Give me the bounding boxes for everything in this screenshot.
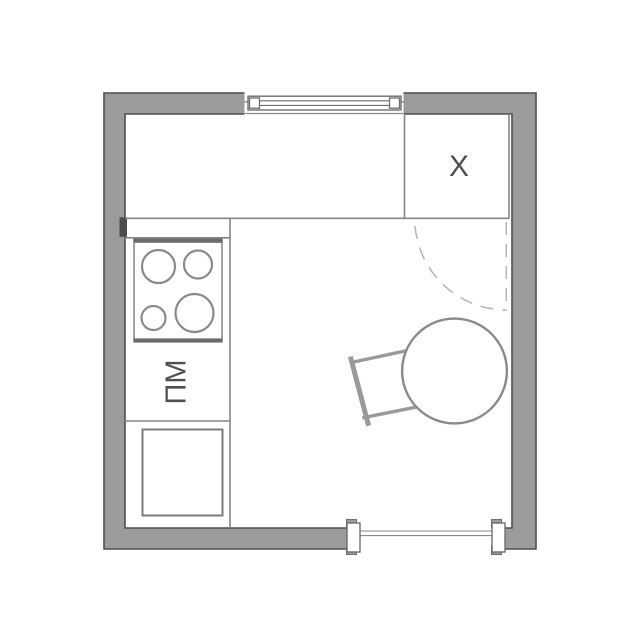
window-end-box-right bbox=[390, 98, 400, 108]
door-jamb-right bbox=[492, 523, 505, 552]
door-jamb-left bbox=[347, 523, 360, 552]
stove-bottom-edge bbox=[134, 338, 223, 342]
window-end-box-left bbox=[250, 98, 260, 108]
floor-plan: X ПМ bbox=[0, 0, 636, 632]
stove-cooktop bbox=[134, 239, 223, 343]
window-frame bbox=[248, 96, 401, 110]
door-opening bbox=[347, 519, 505, 555]
floor-plan-svg: X ПМ bbox=[0, 0, 636, 632]
burner bbox=[176, 294, 214, 332]
burner bbox=[142, 250, 175, 283]
fridge-label: X bbox=[449, 150, 469, 183]
stove-top-edge bbox=[134, 239, 223, 243]
wall-duct bbox=[120, 217, 128, 237]
dining-table bbox=[402, 319, 507, 424]
burner bbox=[184, 251, 212, 279]
sink-cabinet bbox=[143, 430, 223, 516]
burner bbox=[142, 306, 166, 330]
dishwasher-label: ПМ bbox=[161, 359, 193, 404]
doorway bbox=[347, 519, 506, 555]
